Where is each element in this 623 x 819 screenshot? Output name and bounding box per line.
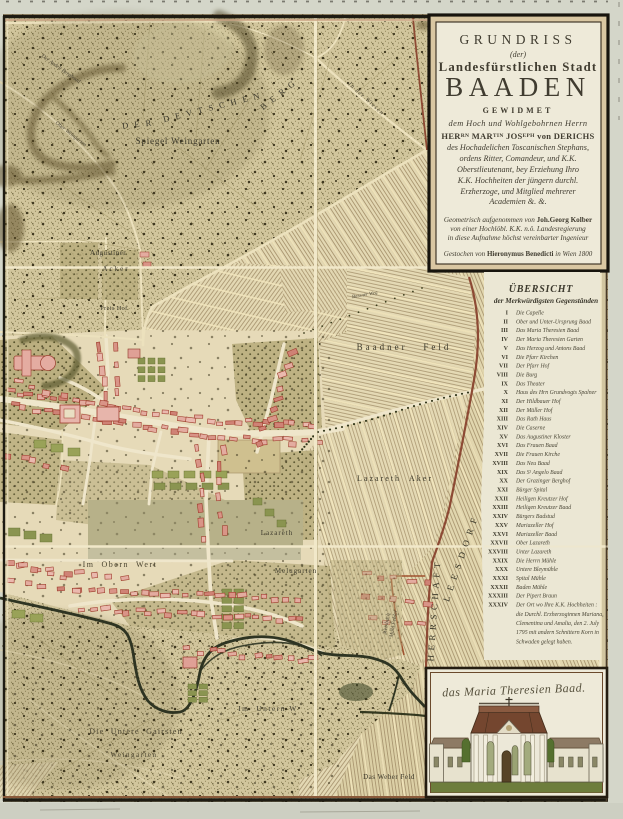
svg-text:GRUNDRISS: GRUNDRISS: [459, 32, 576, 47]
svg-text:Die Untere Gairsten: Die Untere Gairsten: [89, 727, 183, 736]
svg-text:III: III: [501, 328, 509, 334]
svg-text:X: X: [504, 390, 509, 396]
svg-text:XXXIV: XXXIV: [488, 603, 508, 609]
svg-text:Mariazeller Baad: Mariazeller Baad: [515, 532, 557, 538]
svg-text:XXX: XXX: [495, 567, 509, 573]
svg-text:Der Grazinger Berghof: Der Grazinger Berghof: [515, 478, 572, 485]
svg-text:Bürger Spital: Bürger Spital: [516, 488, 548, 494]
svg-text:Das Frauen Baad: Das Frauen Baad: [515, 443, 558, 449]
svg-text:Academien &. &.: Academien &. &.: [488, 197, 546, 206]
svg-text:XXIII: XXIII: [492, 505, 508, 511]
svg-text:XXXII: XXXII: [490, 585, 508, 591]
svg-text:Die Burg: Die Burg: [515, 372, 537, 378]
svg-text:XVIII: XVIII: [492, 461, 508, 467]
svg-text:Der Müller Hof: Der Müller Hof: [515, 407, 554, 414]
svg-text:Baadner Feld: Baadner Feld: [357, 342, 452, 352]
svg-text:Die Caserne: Die Caserne: [515, 426, 546, 432]
svg-text:Bürgers Badstud: Bürgers Badstud: [516, 514, 555, 520]
svg-text:Gestochen von Hieronymus Bened: Gestochen von Hieronymus Benedicti in Wi…: [444, 250, 593, 258]
svg-text:Das Neu Baad: Das Neu Baad: [515, 461, 550, 467]
svg-text:II: II: [503, 319, 508, 325]
svg-text:XVII: XVII: [495, 452, 509, 458]
svg-text:XII: XII: [499, 408, 509, 414]
svg-text:Melugarten: Melugarten: [275, 567, 317, 575]
svg-text:XXV: XXV: [495, 523, 509, 529]
svg-text:dem Hoch und Wohlgebohrnen Her: dem Hoch und Wohlgebohrnen Herrn: [448, 119, 587, 128]
svg-text:Geometrisch aufgenommen von Jo: Geometrisch aufgenommen von Joh.Georg Ko…: [444, 216, 593, 224]
svg-text:ordens Ritter, Comandeur, und: ordens Ritter, Comandeur, und K.K.: [459, 154, 576, 163]
svg-text:XXVI: XXVI: [493, 532, 509, 538]
svg-text:Das Augustiner Kloster: Das Augustiner Kloster: [515, 434, 571, 440]
svg-text:Mariazeller Hof: Mariazeller Hof: [515, 522, 555, 529]
svg-text:ÜBERSICHT: ÜBERSICHT: [509, 282, 574, 295]
svg-text:Weingarten: Weingarten: [110, 751, 157, 759]
svg-text:Das Rath Haus: Das Rath Haus: [515, 417, 552, 423]
svg-text:Die Pfarr Kirchen: Die Pfarr Kirchen: [515, 354, 558, 361]
svg-text:Oberstlieutenant, bey Erziehun: Oberstlieutenant, bey Erziehung Ihro: [457, 165, 579, 174]
svg-text:in diese Aufnahme höchst verei: in diese Aufnahme höchst vereinbarter In…: [448, 234, 589, 242]
svg-text:Das St Angelo Baad: Das St Angelo Baad: [515, 468, 563, 476]
svg-text:Im Obern Wert: Im Obern Wert: [83, 560, 158, 569]
svg-text:XX: XX: [499, 479, 508, 485]
svg-text:Heiligen Kreutzer Hof: Heiligen Kreutzer Hof: [515, 495, 569, 502]
svg-text:Spiegel Weingarten: Spiegel Weingarten: [136, 136, 221, 146]
svg-text:Acker: Acker: [102, 265, 129, 273]
svg-text:Lazareth: Lazareth: [261, 529, 293, 537]
svg-text:XIV: XIV: [497, 426, 509, 432]
svg-text:Heiligen Kreutzer Baad: Heiligen Kreutzer Baad: [515, 505, 571, 511]
svg-text:XXIV: XXIV: [493, 514, 509, 520]
svg-text:Clementina und Amalia, den 2.: Clementina und Amalia, den 2. July: [516, 621, 600, 627]
svg-text:XXI: XXI: [497, 488, 509, 494]
svg-text:VIII: VIII: [497, 372, 509, 378]
svg-text:VI: VI: [501, 355, 508, 361]
svg-text:von einer Hochlöbl. K.K. n.ö.: von einer Hochlöbl. K.K. n.ö. Landesregi…: [450, 225, 586, 233]
svg-text:Der Hildbauer Hof: Der Hildbauer Hof: [515, 398, 562, 405]
svg-text:GEWIDMET: GEWIDMET: [483, 106, 554, 115]
svg-text:K.K. Hochheiten der jüngern du: K.K. Hochheiten der jüngern durchl.: [457, 176, 578, 185]
svg-text:Unter Lazareth: Unter Lazareth: [516, 550, 551, 556]
svg-text:VII: VII: [499, 364, 509, 370]
svg-text:Das Herzog und Antons Baad: Das Herzog und Antons Baad: [515, 346, 585, 352]
svg-text:Der Ort wo Ihre K.K. Hochheite: Der Ort wo Ihre K.K. Hochheiten :: [515, 603, 597, 609]
svg-text:die Durchl. Erzherzoginnen Mar: die Durchl. Erzherzoginnen Mariana,: [516, 612, 604, 618]
svg-text:BAADEN: BAADEN: [445, 72, 591, 102]
svg-text:XIX: XIX: [497, 470, 509, 476]
svg-text:Das Maria Theresien Baad: Das Maria Theresien Baad: [515, 328, 579, 334]
svg-text:XV: XV: [499, 434, 508, 440]
svg-text:Untere Bleymühle: Untere Bleymühle: [516, 567, 558, 573]
svg-text:XXXI: XXXI: [493, 576, 509, 582]
svg-text:Der Pipert Braun: Der Pipert Braun: [515, 594, 557, 600]
svg-text:XXVIII: XXVIII: [488, 550, 509, 556]
svg-text:XXII: XXII: [495, 496, 509, 502]
svg-text:V: V: [504, 346, 509, 352]
svg-text:Lazareth Aker: Lazareth Aker: [357, 474, 433, 483]
svg-text:XI: XI: [501, 399, 508, 405]
svg-text:Spital Mühle: Spital Mühle: [516, 576, 546, 582]
svg-text:XXXIII: XXXIII: [488, 594, 509, 600]
svg-text:Ober und Unter-Ursprung Baad: Ober und Unter-Ursprung Baad: [516, 319, 591, 325]
svg-text:der Merkwürdigsten Gegenstände: der Merkwürdigsten Gegenständen: [494, 297, 598, 305]
svg-text:Der Pfarr Hof: Der Pfarr Hof: [515, 363, 551, 370]
svg-text:IV: IV: [501, 337, 508, 343]
svg-text:Das Theater: Das Theater: [515, 381, 546, 387]
svg-text:Augustiner: Augustiner: [90, 249, 126, 257]
svg-text:(der): (der): [510, 50, 526, 59]
svg-text:1795 mit andern Schnittern Kor: 1795 mit andern Schnittern Korn in: [516, 630, 599, 636]
svg-text:Die Frauen Kirche: Die Frauen Kirche: [515, 452, 560, 458]
svg-text:Haus des Hrn Grundvogts Spalne: Haus des Hrn Grundvogts Spalner: [515, 390, 597, 396]
svg-text:IX: IX: [501, 381, 508, 387]
svg-text:des Hochadelichen Toscanischen: des Hochadelichen Toscanischen Stephans,: [447, 143, 589, 152]
svg-text:Im Untern W: Im Untern W: [238, 704, 298, 713]
svg-text:Erzherzoge, und Mitglied mehre: Erzherzoge, und Mitglied mehrerer: [459, 187, 576, 196]
svg-text:XXIX: XXIX: [493, 558, 509, 564]
svg-text:XVI: XVI: [497, 443, 509, 449]
svg-text:Preis Hof: Preis Hof: [100, 305, 127, 312]
svg-text:Der Maria Theresien Garten: Der Maria Theresien Garten: [515, 337, 583, 343]
svg-text:Baden Mühle: Baden Mühle: [516, 585, 547, 591]
svg-text:Schwaden gelegt haben.: Schwaden gelegt haben.: [516, 639, 572, 645]
svg-text:Die Capelle: Die Capelle: [515, 311, 544, 317]
svg-text:XIII: XIII: [497, 417, 509, 423]
svg-text:Das Weber Feld: Das Weber Feld: [363, 773, 415, 781]
svg-text:Die Herrn Mühle: Die Herrn Mühle: [515, 558, 557, 564]
